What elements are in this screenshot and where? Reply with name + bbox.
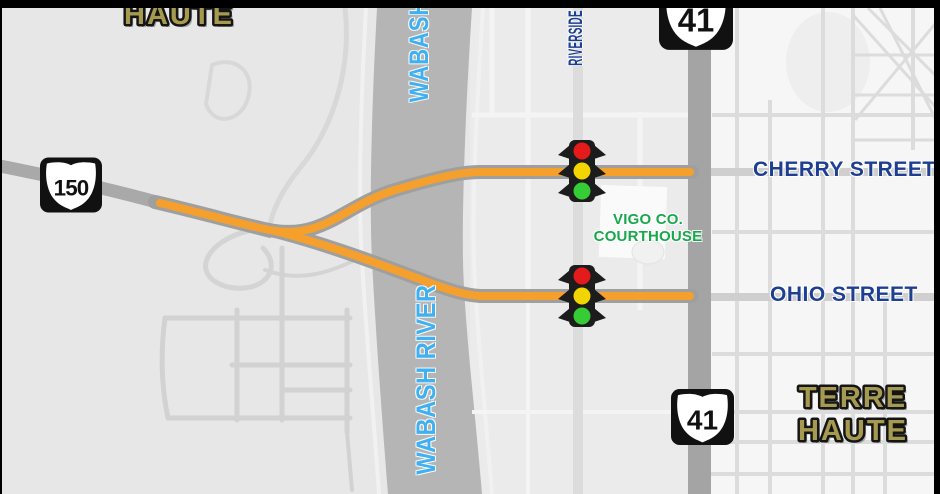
us-route-shield-icon: 41 <box>671 386 734 448</box>
letterbox-bar-top <box>0 0 940 8</box>
wabash-label: WABASH <box>404 4 434 102</box>
signal-yellow-lamp <box>574 163 591 180</box>
ohio-street-label: OHIO STREET <box>770 283 918 307</box>
letterbox-bar-left <box>0 0 2 494</box>
signal-red-lamp <box>574 143 591 160</box>
us150-shield-number: 150 <box>54 175 89 200</box>
signal-red-lamp <box>574 268 591 285</box>
signal-green-lamp <box>574 308 591 325</box>
us-route-shield-icon: 150 <box>40 157 102 213</box>
terre-text: TERRE <box>799 382 907 414</box>
terre-haute-label: TERRE TERRE HAUTE HAUTE <box>760 383 940 449</box>
traffic-signal-icon <box>557 140 607 202</box>
courthouse-label-line2: COURTHOUSE <box>594 228 703 245</box>
cherry-street-label: CHERRY STREET <box>753 158 936 182</box>
signal-green-lamp <box>574 183 591 200</box>
us41-shield-number: 41 <box>687 404 718 435</box>
riverside-label: RIVERSIDE <box>566 0 588 82</box>
park-blob <box>786 12 870 112</box>
wabash-river-label: WABASH RIVER <box>411 307 439 474</box>
haute-text: HAUTE <box>798 415 908 447</box>
courthouse-label: VIGO CO. COURTHOUSE <box>578 211 718 245</box>
map-canvas: 150 41 41 HAUTE HAUTE TERRE TERRE HAUTE … <box>0 0 940 494</box>
traffic-signal-icon <box>557 265 607 327</box>
courthouse-label-line1: VIGO CO. <box>613 211 683 228</box>
signal-yellow-lamp <box>574 288 591 305</box>
letterbox-bar-right <box>934 0 940 494</box>
